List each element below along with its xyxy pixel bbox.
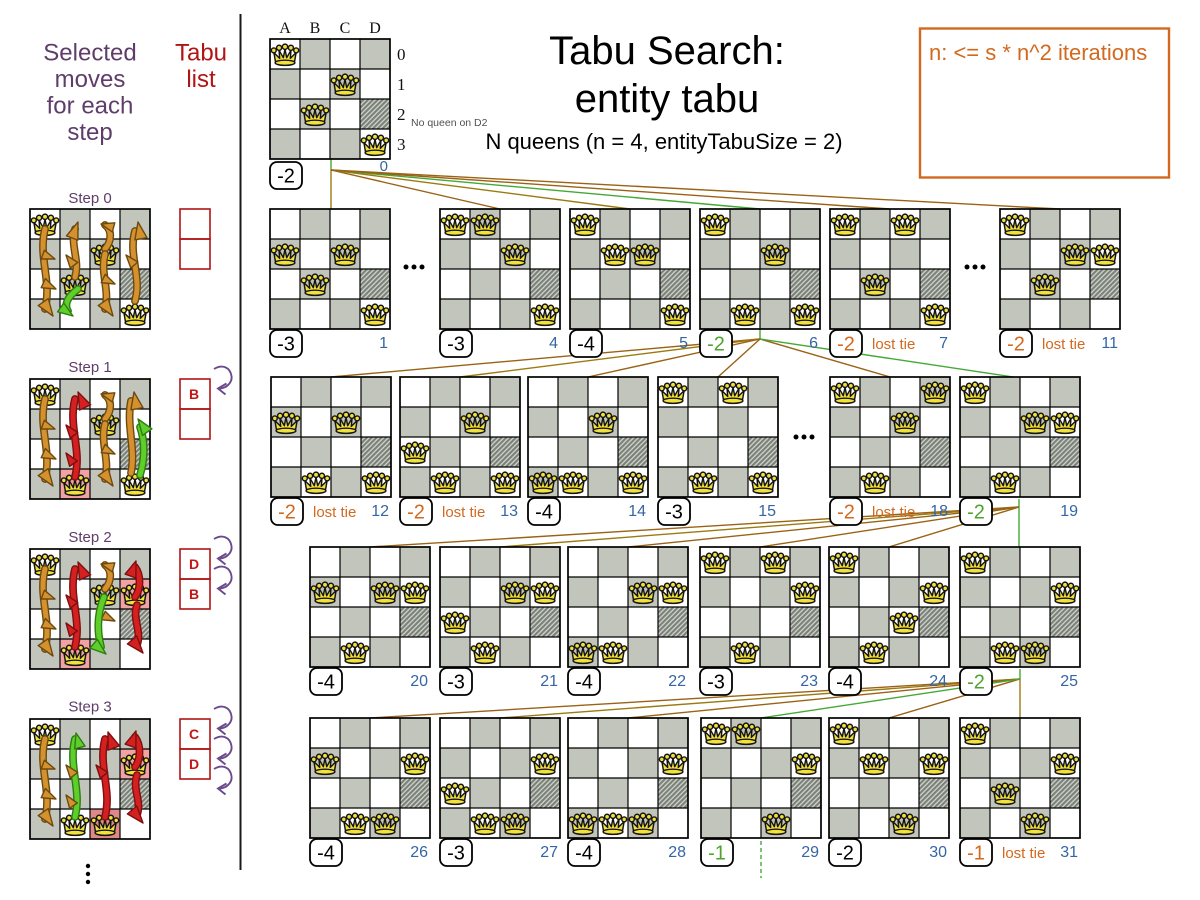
svg-text:lost tie: lost tie — [872, 504, 915, 521]
svg-text:ABCD: ABCD — [279, 20, 381, 37]
svg-text:Tabu Search:: Tabu Search: — [549, 29, 785, 73]
svg-text:20: 20 — [410, 673, 428, 690]
svg-text:-4: -4 — [317, 672, 335, 694]
svg-text:lost tie: lost tie — [872, 336, 915, 353]
svg-text:-3: -3 — [665, 502, 683, 524]
svg-text:D: D — [189, 756, 199, 772]
svg-text:14: 14 — [628, 503, 646, 520]
svg-text:Step 1: Step 1 — [68, 359, 111, 376]
svg-text:15: 15 — [758, 503, 776, 520]
svg-text:N queens (n = 4, entityTabuSiz: N queens (n = 4, entityTabuSize = 2) — [485, 129, 842, 154]
svg-text:22: 22 — [668, 673, 686, 690]
svg-text:-2: -2 — [836, 843, 854, 865]
svg-text:lost tie: lost tie — [1042, 336, 1085, 353]
svg-text:18: 18 — [930, 503, 948, 520]
svg-text:26: 26 — [410, 844, 428, 861]
svg-text:23: 23 — [800, 673, 818, 690]
svg-text:0123: 0123 — [397, 45, 406, 154]
svg-text:-4: -4 — [575, 672, 593, 694]
svg-text:4: 4 — [549, 335, 558, 352]
svg-text:lost tie: lost tie — [1002, 845, 1045, 862]
svg-text:D: D — [189, 556, 199, 572]
svg-text:6: 6 — [809, 335, 818, 352]
svg-text:12: 12 — [371, 503, 389, 520]
svg-text:-3: -3 — [447, 334, 465, 356]
svg-text:11: 11 — [1101, 335, 1118, 352]
svg-text:-4: -4 — [836, 672, 854, 694]
svg-text:30: 30 — [929, 844, 947, 861]
svg-text:-3: -3 — [447, 672, 465, 694]
svg-text:27: 27 — [540, 844, 558, 861]
svg-text:-3: -3 — [707, 672, 725, 694]
svg-text:-3: -3 — [447, 843, 465, 865]
svg-text:0: 0 — [380, 158, 388, 175]
svg-text:-2: -2 — [837, 502, 855, 524]
svg-text:Selectedmovesfor eachstep: Selectedmovesfor eachstep — [43, 40, 136, 147]
svg-text:5: 5 — [679, 335, 688, 352]
svg-text:-4: -4 — [577, 334, 595, 356]
svg-text:13: 13 — [500, 503, 518, 520]
svg-text:entity tabu: entity tabu — [575, 77, 760, 121]
svg-text:-2: -2 — [277, 166, 295, 188]
svg-text:B: B — [189, 586, 199, 602]
svg-text:-2: -2 — [407, 502, 425, 524]
svg-text:Step 2: Step 2 — [68, 529, 111, 546]
svg-text:-1: -1 — [708, 843, 726, 865]
svg-text:-3: -3 — [277, 334, 295, 356]
svg-text:28: 28 — [668, 844, 686, 861]
svg-text:-2: -2 — [278, 502, 296, 524]
svg-text:-1: -1 — [967, 843, 985, 865]
svg-text:n: <= s * n^2 iterations: n: <= s * n^2 iterations — [929, 40, 1147, 65]
svg-text:Step 0: Step 0 — [68, 190, 111, 207]
svg-text:-2: -2 — [707, 334, 725, 356]
svg-text:19: 19 — [1060, 503, 1078, 520]
svg-text:25: 25 — [1060, 673, 1078, 690]
svg-text:29: 29 — [801, 844, 819, 861]
svg-text:-4: -4 — [317, 843, 335, 865]
svg-text:Tabulist: Tabulist — [175, 40, 227, 94]
svg-text:7: 7 — [939, 335, 948, 352]
svg-text:-2: -2 — [967, 672, 985, 694]
svg-text:lost tie: lost tie — [442, 504, 485, 521]
svg-text:1: 1 — [379, 335, 388, 352]
svg-text:No queen on D2: No queen on D2 — [411, 117, 488, 129]
svg-text:C: C — [189, 726, 199, 742]
svg-text:-4: -4 — [575, 843, 593, 865]
svg-text:24: 24 — [929, 673, 947, 690]
svg-text:31: 31 — [1060, 844, 1078, 861]
svg-text:-2: -2 — [967, 502, 985, 524]
svg-text:lost tie: lost tie — [313, 504, 356, 521]
svg-text:-4: -4 — [535, 502, 553, 524]
svg-text:-2: -2 — [1007, 334, 1025, 356]
svg-text:Step 3: Step 3 — [68, 699, 111, 716]
svg-text:-2: -2 — [837, 334, 855, 356]
svg-text:B: B — [189, 386, 199, 402]
svg-text:21: 21 — [540, 673, 558, 690]
